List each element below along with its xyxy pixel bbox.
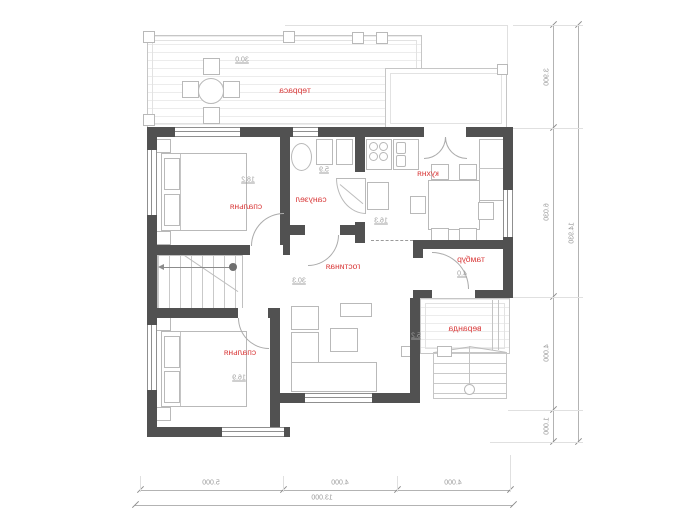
pillow <box>164 194 180 226</box>
nightstand <box>156 407 171 421</box>
porch-top-right <box>385 68 507 129</box>
room-label-living: гостиная <box>326 261 361 271</box>
washbasin <box>291 143 312 171</box>
steps-post <box>464 384 475 395</box>
extension-line <box>283 476 284 492</box>
pillow <box>164 371 180 403</box>
roof-overhang-line <box>285 25 508 26</box>
extension-line <box>513 128 583 129</box>
burner <box>379 152 388 161</box>
dim-right-1: 3.900 <box>544 68 551 86</box>
dim-bottom-1: 5.000 <box>202 480 220 487</box>
room-area-bathroom: 5.9 <box>319 167 329 174</box>
pillow <box>164 336 180 368</box>
dining-chair <box>410 196 426 214</box>
armchair <box>291 306 319 330</box>
wall-vestibule-top <box>413 240 513 249</box>
door-arc-terrace-left-leaf <box>424 137 446 159</box>
room-label-bedroom-top: спальня <box>230 201 262 211</box>
sofa-bottom <box>291 362 377 392</box>
room-area-kitchen: 16.3 <box>374 218 388 225</box>
toilet <box>316 139 333 165</box>
dim-tick <box>510 501 517 508</box>
window-bedroom-top-left <box>147 150 157 215</box>
extension-line <box>490 442 583 443</box>
window-bedroom-bottom <box>222 427 284 437</box>
dim-bottom-3: 4.000 <box>444 480 462 487</box>
floor-plan: терраса 30.0 спальня 18.2 санузел 5.9 ку… <box>0 0 700 525</box>
wall-vestibule-bottom-right <box>475 290 513 298</box>
room-area-bedroom-top: 18.2 <box>241 177 255 184</box>
burner <box>369 152 378 161</box>
terrace-chair <box>223 81 240 98</box>
extension-line <box>513 297 583 298</box>
veranda-post <box>437 346 452 357</box>
sink-bowl <box>396 142 406 154</box>
door-arc-terrace-right-leaf <box>445 137 467 159</box>
terrace-chair <box>203 58 220 75</box>
dim-right-2: 6.030 <box>544 203 551 221</box>
wall-vestibule-bottom-left <box>413 290 432 298</box>
dim-right-3: 4.000 <box>544 344 551 362</box>
steps-center-line <box>469 346 470 388</box>
tv-stand <box>340 303 372 317</box>
wall-bathroom-kitchen-upper <box>355 137 365 172</box>
burner <box>379 142 388 151</box>
room-area-living: 30.3 <box>292 278 306 285</box>
window-bedroom-bottom-left <box>147 325 157 390</box>
wall-vestibule-left-stub <box>413 249 423 258</box>
extension-line <box>508 410 583 411</box>
room-label-bathroom: санузел <box>295 194 326 204</box>
room-label-veranda: веранда <box>449 323 482 333</box>
extension-line <box>397 476 398 492</box>
dim-right-total: 14.930 <box>569 222 576 243</box>
dining-chair <box>478 202 494 220</box>
nightstand <box>156 139 171 153</box>
dim-right-4: 1.000 <box>544 417 551 435</box>
window-living-room <box>305 393 372 403</box>
extension-line <box>510 455 511 492</box>
room-label-kitchen: кухня <box>417 168 439 178</box>
kitchen-counter <box>479 139 505 201</box>
room-area-veranda: 5.2 <box>411 333 421 340</box>
extension-line <box>513 25 583 26</box>
window-bathroom <box>293 127 318 137</box>
wall-bathroom-kitchen-lower <box>355 222 365 243</box>
room-area-bedroom-bottom: 16.9 <box>232 375 246 382</box>
dimension-line-bottom-outer <box>135 505 513 506</box>
room-area-vestibule: 4.0 <box>457 271 467 278</box>
opening-living-kitchen <box>371 240 413 241</box>
dining-chair <box>459 164 477 180</box>
door-opening-bedroom-top <box>250 245 283 255</box>
roof-overhang-line <box>507 25 508 68</box>
stairs-arrow <box>158 264 164 270</box>
wall-bedroom-bottom-right <box>270 308 280 437</box>
dimension-line-right-inner <box>553 25 554 442</box>
room-label-bedroom-bottom: спальня <box>224 347 256 357</box>
dim-bottom-total: 13.000 <box>311 495 332 502</box>
veranda-railing <box>498 300 499 350</box>
door-opening-kitchen-terrace <box>424 127 466 137</box>
window-bedroom-top <box>175 127 240 137</box>
sink-bowl <box>396 155 406 167</box>
door-arc-bedroom-top <box>251 213 284 246</box>
nightstand <box>156 231 171 245</box>
door-opening-bathroom <box>305 225 340 235</box>
dining-table <box>428 180 480 230</box>
room-label-vestibule: тамбур <box>457 254 485 264</box>
porch-post <box>497 64 508 75</box>
counter-divider <box>479 168 503 169</box>
terrace-post <box>143 114 155 126</box>
window-kitchen-right <box>503 190 513 237</box>
dim-bottom-2: 4.000 <box>331 480 349 487</box>
room-label-terrace: терраса <box>279 85 311 95</box>
veranda-railing <box>492 300 493 350</box>
terrace-table <box>198 78 224 104</box>
coffee-table <box>330 328 358 352</box>
stairs-walk-dot <box>229 263 237 271</box>
dimension-line-right-outer <box>578 25 579 442</box>
room-area-terrace: 30.0 <box>235 57 249 64</box>
terrace-chair <box>182 81 199 98</box>
pillow <box>164 158 180 190</box>
burner <box>369 142 378 151</box>
nightstand <box>156 317 171 331</box>
terrace-chair <box>203 107 220 124</box>
extension-line <box>140 476 141 492</box>
stairs-walk-line <box>163 267 233 268</box>
terrace-post <box>376 32 388 44</box>
bidet <box>336 139 353 165</box>
terrace-post <box>143 31 155 43</box>
door-opening-bedroom-bottom <box>238 308 268 318</box>
wall-living-right <box>410 298 420 403</box>
terrace-post <box>352 32 364 44</box>
fridge <box>367 182 389 210</box>
terrace-post <box>283 31 295 43</box>
dimension-line-bottom-inner <box>140 490 510 491</box>
